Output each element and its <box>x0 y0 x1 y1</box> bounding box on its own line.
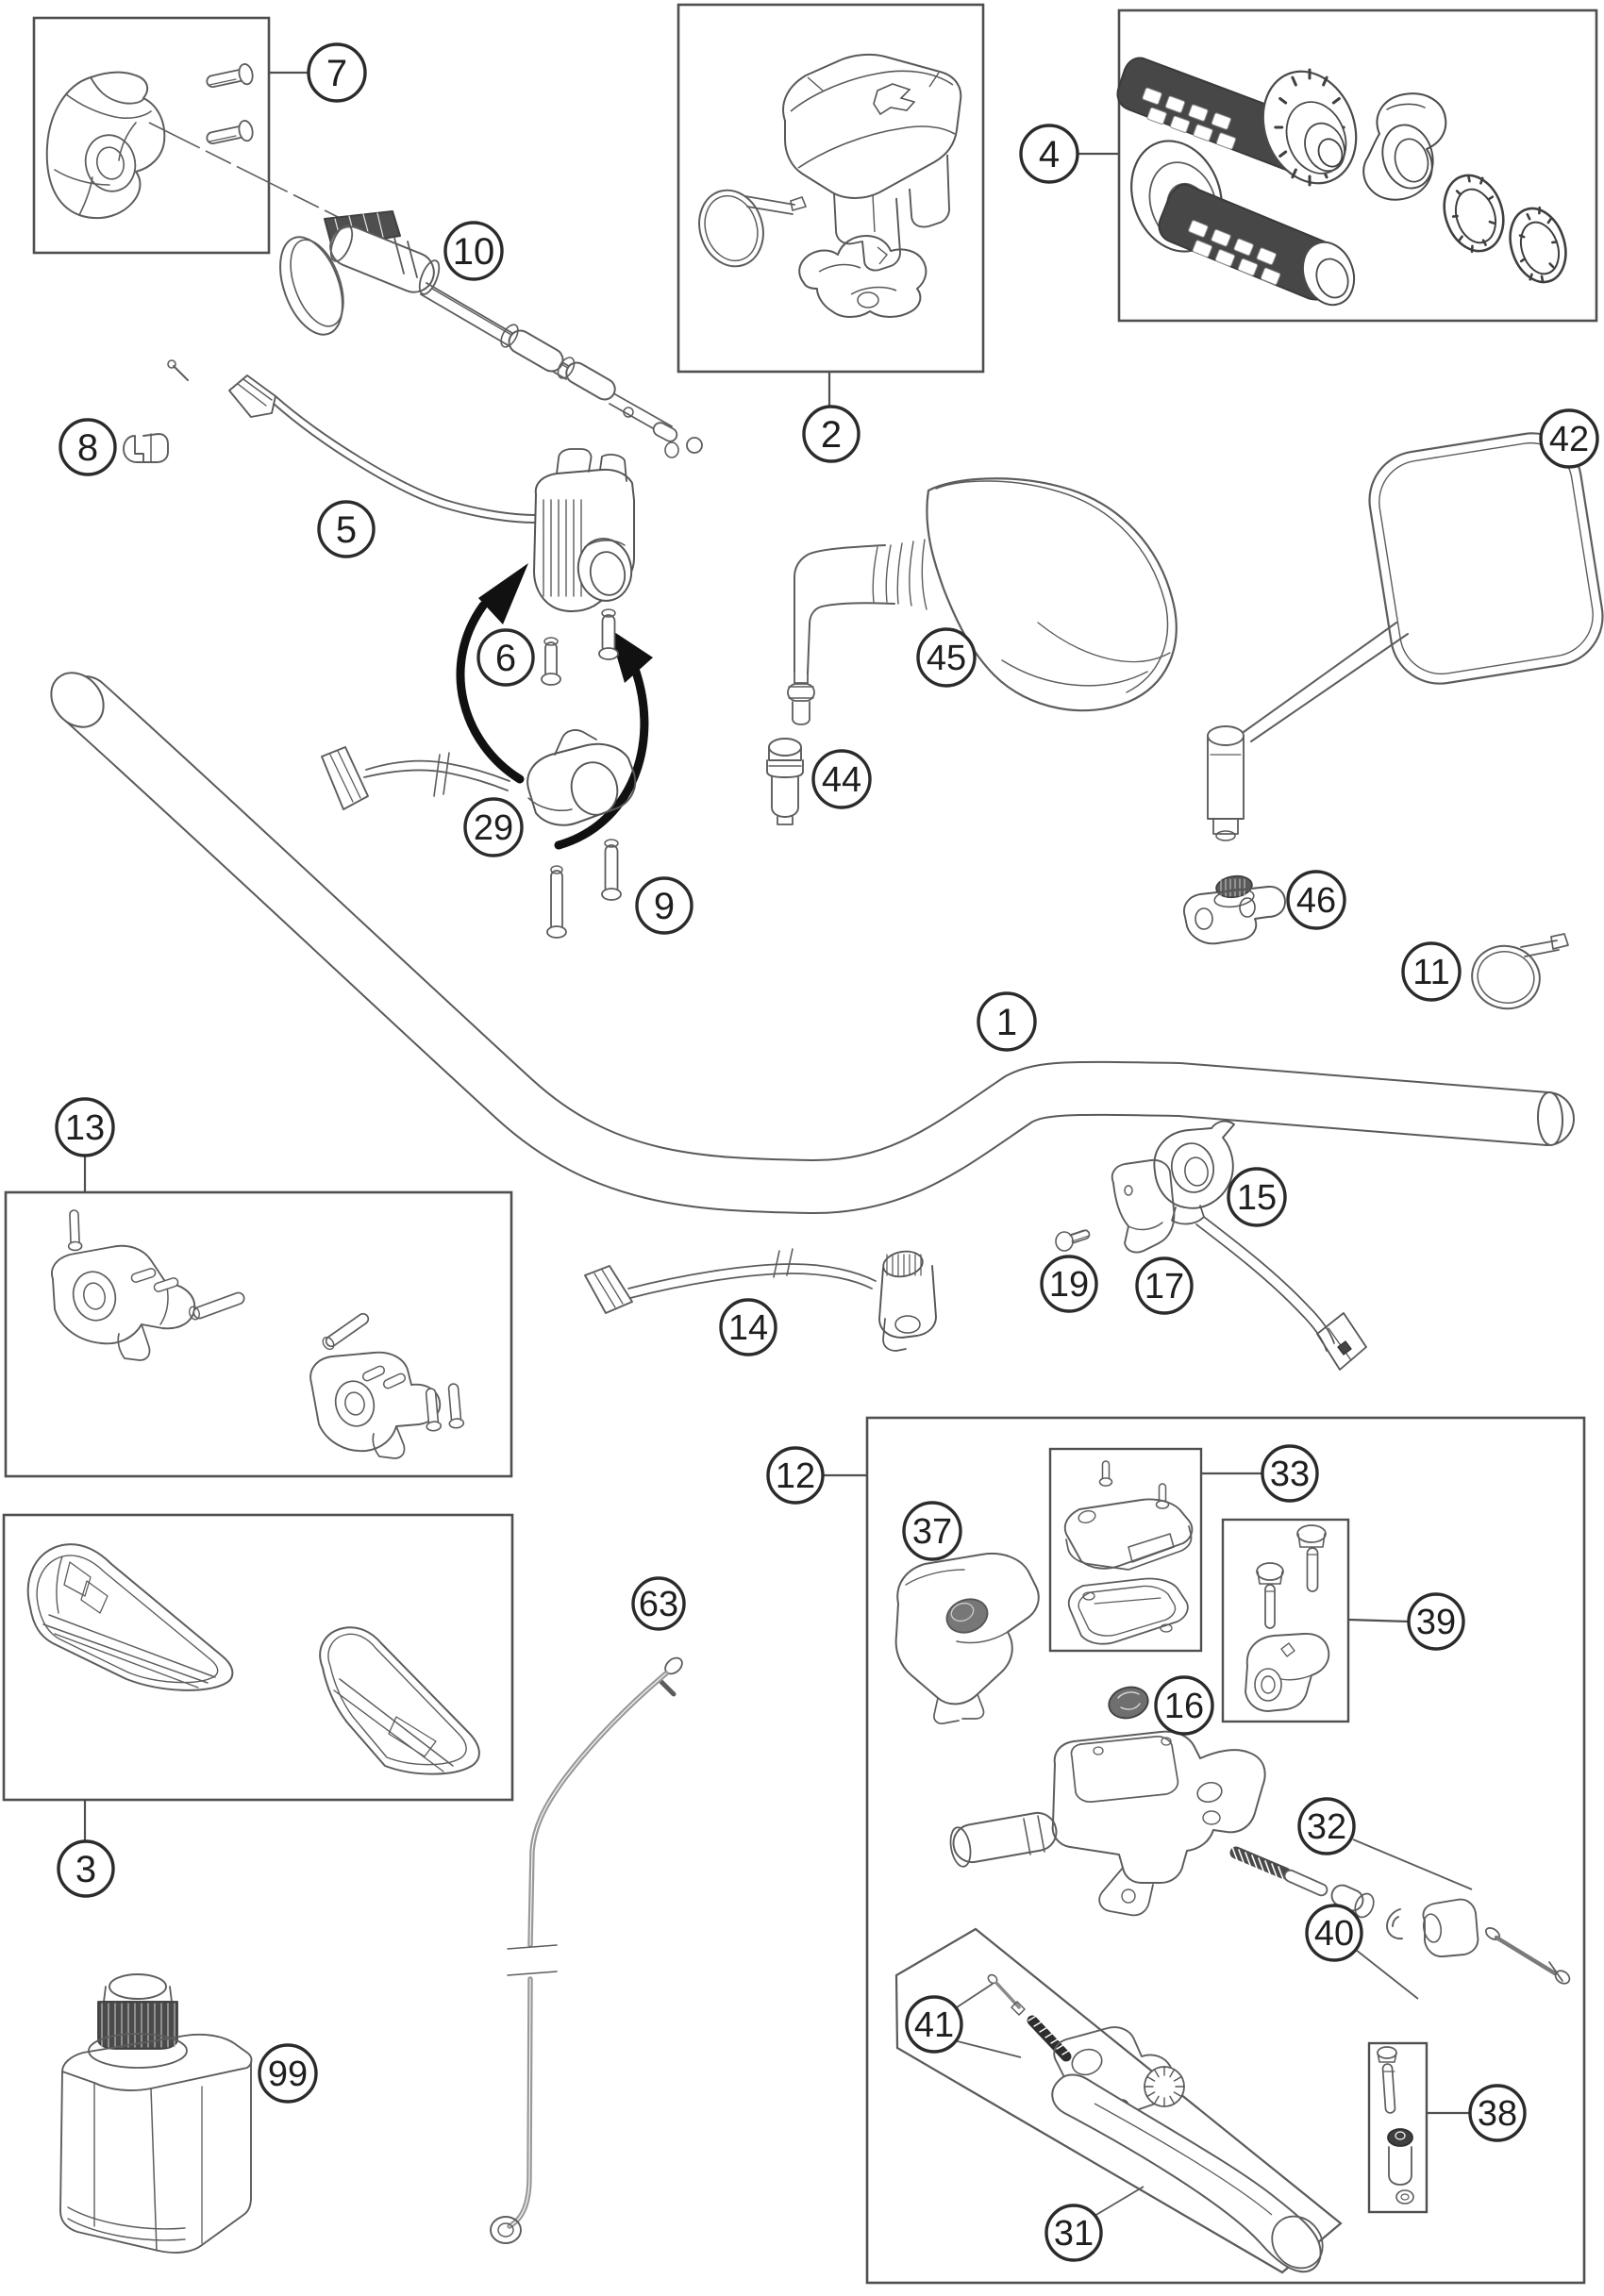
svg-text:17: 17 <box>1145 1267 1184 1306</box>
svg-text:99: 99 <box>268 2055 308 2094</box>
svg-text:14: 14 <box>728 1308 768 1348</box>
svg-text:42: 42 <box>1549 420 1589 459</box>
svg-text:33: 33 <box>1270 1455 1310 1494</box>
svg-text:63: 63 <box>639 1585 678 1624</box>
svg-text:4: 4 <box>1039 134 1060 175</box>
svg-text:44: 44 <box>822 760 861 800</box>
svg-text:10: 10 <box>453 231 495 273</box>
svg-text:29: 29 <box>474 808 513 848</box>
svg-text:16: 16 <box>1164 1687 1204 1726</box>
svg-text:46: 46 <box>1296 881 1336 921</box>
svg-text:9: 9 <box>654 886 675 927</box>
svg-text:31: 31 <box>1054 2214 1094 2254</box>
svg-text:13: 13 <box>65 1108 105 1148</box>
svg-text:1: 1 <box>996 1002 1017 1043</box>
svg-text:11: 11 <box>1412 953 1449 992</box>
svg-text:8: 8 <box>77 427 98 469</box>
svg-text:6: 6 <box>495 638 516 679</box>
svg-text:45: 45 <box>927 639 966 678</box>
svg-text:15: 15 <box>1237 1178 1277 1218</box>
svg-text:2: 2 <box>821 414 842 456</box>
svg-text:12: 12 <box>776 1456 815 1496</box>
svg-text:41: 41 <box>914 2005 954 2045</box>
svg-text:19: 19 <box>1049 1265 1089 1305</box>
svg-text:32: 32 <box>1307 1807 1346 1847</box>
svg-text:5: 5 <box>336 509 357 551</box>
svg-text:3: 3 <box>75 1849 96 1890</box>
svg-text:40: 40 <box>1314 1914 1354 1954</box>
svg-text:7: 7 <box>326 53 347 94</box>
svg-text:37: 37 <box>912 1512 952 1552</box>
svg-text:39: 39 <box>1416 1603 1456 1642</box>
svg-text:38: 38 <box>1478 2094 1517 2134</box>
